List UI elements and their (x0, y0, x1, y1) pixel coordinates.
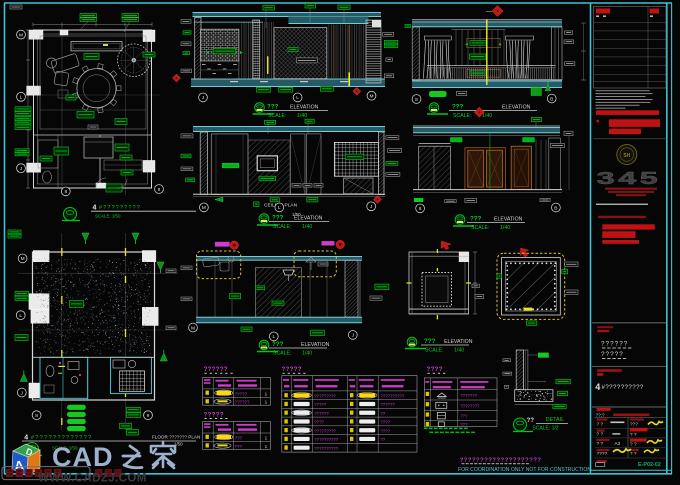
svg-text:SCALE:: SCALE: (268, 113, 286, 119)
svg-text:4: 4 (93, 205, 97, 212)
svg-text:?????: ????? (601, 351, 624, 358)
svg-text:CAD: CAD (52, 442, 114, 472)
svg-text:??: ?? (527, 417, 535, 424)
svg-text:???????: ??????? (460, 393, 477, 398)
svg-text:345: 345 (597, 168, 662, 189)
svg-text:??: ?? (380, 437, 385, 442)
svg-text:M: M (370, 94, 374, 100)
svg-text:M: M (202, 205, 206, 211)
svg-text:M: M (191, 325, 195, 331)
svg-text:4: 4 (595, 382, 600, 392)
svg-text:M: M (19, 32, 23, 38)
svg-text:4: 4 (24, 434, 28, 441)
svg-text:8: 8 (419, 206, 422, 212)
svg-text:??????????: ?????????? (314, 437, 339, 442)
svg-text:8: 8 (35, 413, 38, 419)
svg-text:FLOOR ??????? PLAN: FLOOR ??????? PLAN (152, 434, 200, 439)
svg-text:????????????????????: ???????????????????? (460, 457, 542, 463)
svg-text:?????: ????? (235, 391, 248, 396)
svg-text:1/40: 1/40 (454, 348, 464, 354)
svg-text:??????: ?????? (314, 411, 329, 416)
svg-text:?????????: ????????? (314, 394, 336, 399)
svg-text:???: ??? (424, 338, 436, 345)
svg-text:? ?: ? ? (597, 431, 604, 437)
svg-text:M: M (21, 256, 25, 262)
svg-text:L: L (278, 205, 281, 211)
svg-text:SCALE: 1/50: SCALE: 1/50 (95, 214, 121, 219)
svg-text:?????: ????? (204, 412, 224, 418)
svg-text:??: ?? (380, 411, 385, 416)
svg-text:B: B (554, 205, 557, 211)
svg-text:SCALE:: SCALE: (453, 113, 471, 119)
svg-text:#??????????: #?????????? (602, 384, 644, 391)
svg-text:???: ??? (460, 414, 468, 419)
svg-text:ELEVATION: ELEVATION (301, 342, 330, 348)
svg-text:????: ???? (314, 420, 324, 425)
svg-text:?????????: ????????? (314, 428, 336, 433)
svg-text:??????: ?????? (601, 341, 628, 348)
svg-text:L: L (296, 95, 299, 101)
svg-text:SCALE:: SCALE: (471, 225, 489, 231)
svg-text:?????: ????? (282, 367, 302, 373)
svg-text:ELEVATION: ELEVATION (290, 105, 319, 111)
svg-text:???: ??? (630, 422, 638, 428)
svg-text:????: ???? (427, 367, 443, 373)
svg-text:B: B (550, 96, 553, 102)
svg-text:SCALE:: SCALE: (273, 224, 291, 230)
svg-text:???: ??? (470, 216, 482, 223)
svg-text:1/40: 1/40 (297, 113, 307, 119)
svg-text:9: 9 (158, 187, 161, 193)
svg-text:? ?: ? ? (630, 451, 637, 457)
svg-text:#?????????????: #????????????? (31, 435, 93, 441)
svg-text:A3: A3 (615, 441, 621, 446)
svg-text:FOR COORDINATION ONLY NOT FOR: FOR COORDINATION ONLY NOT FOR CONSTRUCTI… (458, 467, 591, 473)
svg-text:#?????????: #????????? (99, 205, 141, 211)
svg-text:???: ??? (460, 422, 468, 427)
svg-text:E-P02-02: E-P02-02 (638, 462, 661, 468)
svg-text:SCALE:: SCALE: (273, 351, 291, 357)
svg-text:??????: ?????? (204, 367, 228, 373)
svg-text:? ?: ? ? (597, 441, 604, 447)
svg-text:? ?: ? ? (630, 432, 637, 438)
svg-text:WWW.CADZJ.COM: WWW.CADZJ.COM (38, 473, 147, 485)
svg-text:1/40: 1/40 (302, 351, 312, 357)
svg-text:??????: ?????? (235, 400, 251, 405)
svg-text:8: 8 (64, 189, 67, 195)
svg-text:???: ??? (267, 104, 279, 111)
svg-text:????????: ???????? (460, 403, 480, 408)
svg-text:ELEVATION: ELEVATION (494, 217, 523, 223)
svg-text:???: ??? (272, 215, 284, 222)
svg-text:??;?: ??;? (596, 413, 605, 418)
svg-text:? ?: ? ? (597, 422, 604, 428)
svg-text:????: ???? (380, 420, 390, 425)
svg-text:1/40: 1/40 (302, 224, 312, 230)
svg-text:??????????: ?????????? (380, 394, 405, 399)
svg-text:????: ???? (380, 428, 390, 433)
svg-text:8: 8 (415, 97, 418, 103)
svg-text:L: L (19, 313, 22, 319)
svg-text:L: L (272, 334, 275, 340)
svg-text:???: ??? (235, 435, 243, 440)
svg-text:????: ???? (597, 451, 608, 457)
svg-text:ELEVATION: ELEVATION (294, 216, 323, 222)
svg-text:ELEVATION: ELEVATION (502, 105, 531, 111)
svg-text:9: 9 (147, 413, 150, 419)
svg-text:ELEVATION: ELEVATION (444, 339, 473, 345)
svg-text:??????: ?????? (380, 402, 395, 407)
svg-text:??????????: ?????????? (314, 446, 339, 451)
svg-text:SCALE:: SCALE: (425, 348, 443, 354)
svg-text:L: L (20, 95, 23, 101)
svg-text:1/40: 1/40 (482, 113, 492, 119)
svg-text:? ?: ? ? (630, 442, 637, 448)
svg-text:1/40: 1/40 (500, 225, 510, 231)
svg-text:SCALE: 1/2: SCALE: 1/2 (532, 425, 558, 431)
svg-text:SH: SH (623, 153, 630, 159)
svg-text:?????: ????? (314, 402, 327, 407)
svg-text:???: ??? (452, 104, 464, 111)
svg-text:???: ??? (272, 341, 284, 348)
svg-text:???: ??? (235, 444, 243, 449)
svg-text:DETAIL: DETAIL (546, 417, 564, 423)
